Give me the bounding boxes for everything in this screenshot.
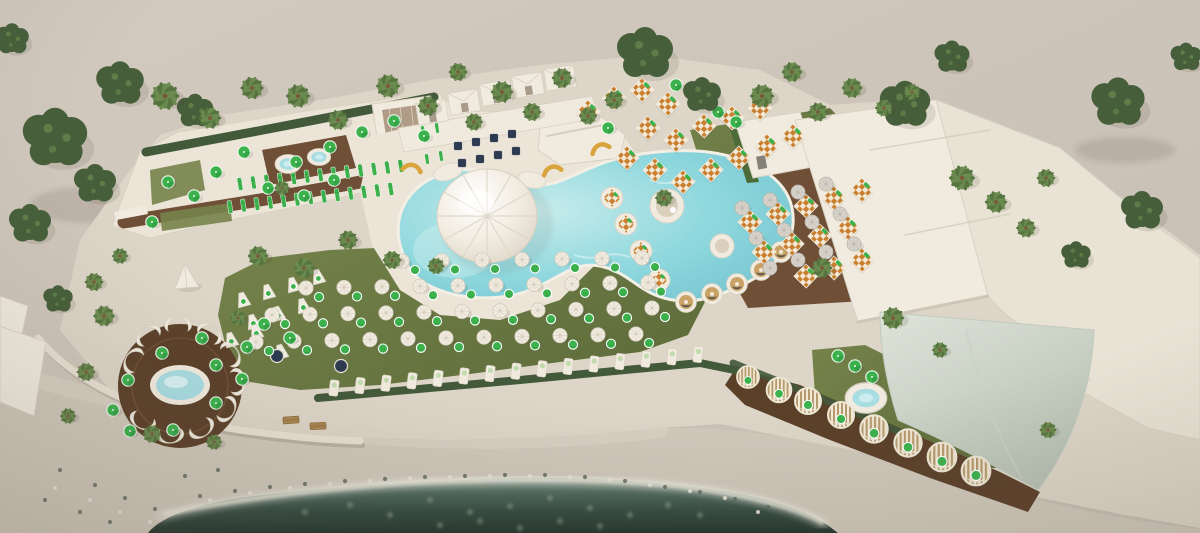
vignette — [0, 0, 1200, 533]
beach-club-render — [0, 0, 1200, 533]
aerial-scene — [0, 0, 1200, 533]
